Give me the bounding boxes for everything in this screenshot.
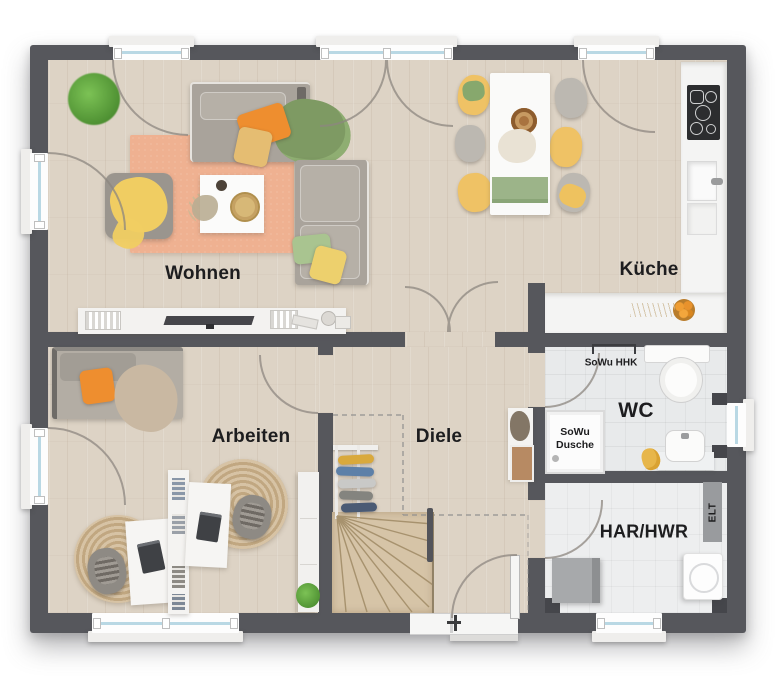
sofa-cushion [300,165,360,222]
window-cap [646,48,654,59]
window-cap [34,154,45,162]
laptop-icon [196,512,222,543]
window-glass [38,156,41,227]
window-glass [581,51,652,54]
vase-icon [216,180,227,191]
cooktop [687,85,720,140]
room-label-arbeiten: Arbeiten [212,426,291,448]
room-label-kueche: Küche [619,259,678,281]
books-decor [85,311,121,330]
opening-har-door [528,500,545,558]
fruit-bowl [673,299,695,321]
window-cap [653,618,661,629]
window-cap [114,48,122,59]
dried-bouquet-decor [498,129,536,163]
window-cap [93,618,101,629]
window-cap [34,429,45,437]
wardrobe-seam [300,564,317,565]
dining-chair-gray [455,125,485,162]
room-label-har-hwr: HAR/HWR [600,522,688,543]
shower-drain-icon [552,455,559,462]
entrance-step [450,634,518,641]
door-handle-icon [447,621,461,624]
plant-icon [68,73,120,125]
terrace-door-kitchen [578,45,655,60]
room-label-wc: WC [618,399,653,423]
label-sowu-hhk: SoWu HHK [585,358,638,369]
books-decor [172,514,185,534]
window-cap [230,618,238,629]
coat-rack [333,445,378,519]
garment-navy [341,502,377,512]
orange-pillow [79,367,116,405]
kitchen-sink-half [687,203,717,235]
garment-gold [338,454,374,465]
burner-icon [705,91,717,103]
burner-icon [690,90,704,104]
washer-door-icon [689,563,719,593]
window-top-living [113,45,190,60]
window-glass [116,51,187,54]
window-right-wc [727,403,746,447]
opening-arbeiten-door [318,355,333,413]
garment-gray [339,490,373,500]
table-runner [492,177,548,203]
entrance-door-leaf [510,555,520,619]
dried-flowers-decor [510,411,530,441]
wall-jamb [712,598,727,613]
burner-icon [690,122,703,135]
coat-rack-bar [333,445,378,450]
floor-plan-page: { "type": "floor-plan", "rooms": { "wohn… [0,0,775,679]
shower-label-line1: SoWu [560,426,590,438]
box-decor [335,316,351,329]
opening-double-door [405,332,495,347]
books-decor [172,478,185,500]
entrance-door-threshold [410,613,518,635]
burner-icon [706,124,716,134]
chair-pillow [238,501,267,531]
twig-decor [630,303,675,317]
opening-wc-door [528,353,545,407]
desk [185,482,231,568]
window-cap [444,48,452,59]
books-decor [172,594,185,610]
elt-label: ELT [707,502,718,522]
tv-stand [206,324,214,329]
yellow-throw [556,181,589,212]
window-bottom-har [596,613,662,633]
terrace-door-living [320,45,453,60]
shower-label-line2: Dusche [556,439,594,451]
picture-frame-decor [510,445,534,482]
window-cap [383,48,391,59]
window-glass [735,406,738,444]
wall-jamb [712,445,727,458]
window-glass [38,431,41,502]
faucet-icon [711,178,723,185]
dried-grass-decor [192,195,218,221]
elt-panel: ELT [703,482,722,542]
floor-plan: SoWu Dusche ELT [30,45,746,633]
faucet-icon [681,433,689,439]
radiator-hhk-icon [592,344,636,354]
window-cap [162,618,170,629]
window-cap [321,48,329,59]
shower-tray: SoWu Dusche [545,410,605,474]
burner-icon [695,105,711,121]
window-bottom-arbeiten [92,613,239,633]
books-decor [172,566,185,588]
napkin-decor [462,80,486,102]
utility-unit [552,558,600,603]
window-cap [597,618,605,629]
window-glass [599,622,659,625]
wardrobe-seam [300,518,317,519]
dining-table [490,73,550,215]
tv-sideboard [78,308,346,334]
coffee-table [200,175,264,233]
bathroom-sink [665,430,705,462]
toilet-bowl [659,357,703,403]
staircase [332,512,433,613]
window-left-living [30,153,48,230]
window-cap [181,48,189,59]
washing-machine [683,553,723,600]
wall-jamb [712,393,727,405]
stair-handrail [427,508,433,562]
window-left-arbeiten [30,428,48,505]
garment-blue [336,466,374,476]
room-label-diele: Diele [416,426,462,448]
window-cap [579,48,587,59]
garment-light [338,478,376,488]
plant-icon [296,583,320,608]
window-cap [34,496,45,504]
laptop-icon [137,540,166,574]
room-label-wohnen: Wohnen [165,263,241,285]
decor-tray [230,192,260,222]
chair-pillow [93,555,121,586]
console-table [508,408,533,480]
window-cap [34,221,45,229]
bowl-decor [321,311,336,326]
wall-stub-kitchen [528,283,545,332]
desk [125,519,174,606]
